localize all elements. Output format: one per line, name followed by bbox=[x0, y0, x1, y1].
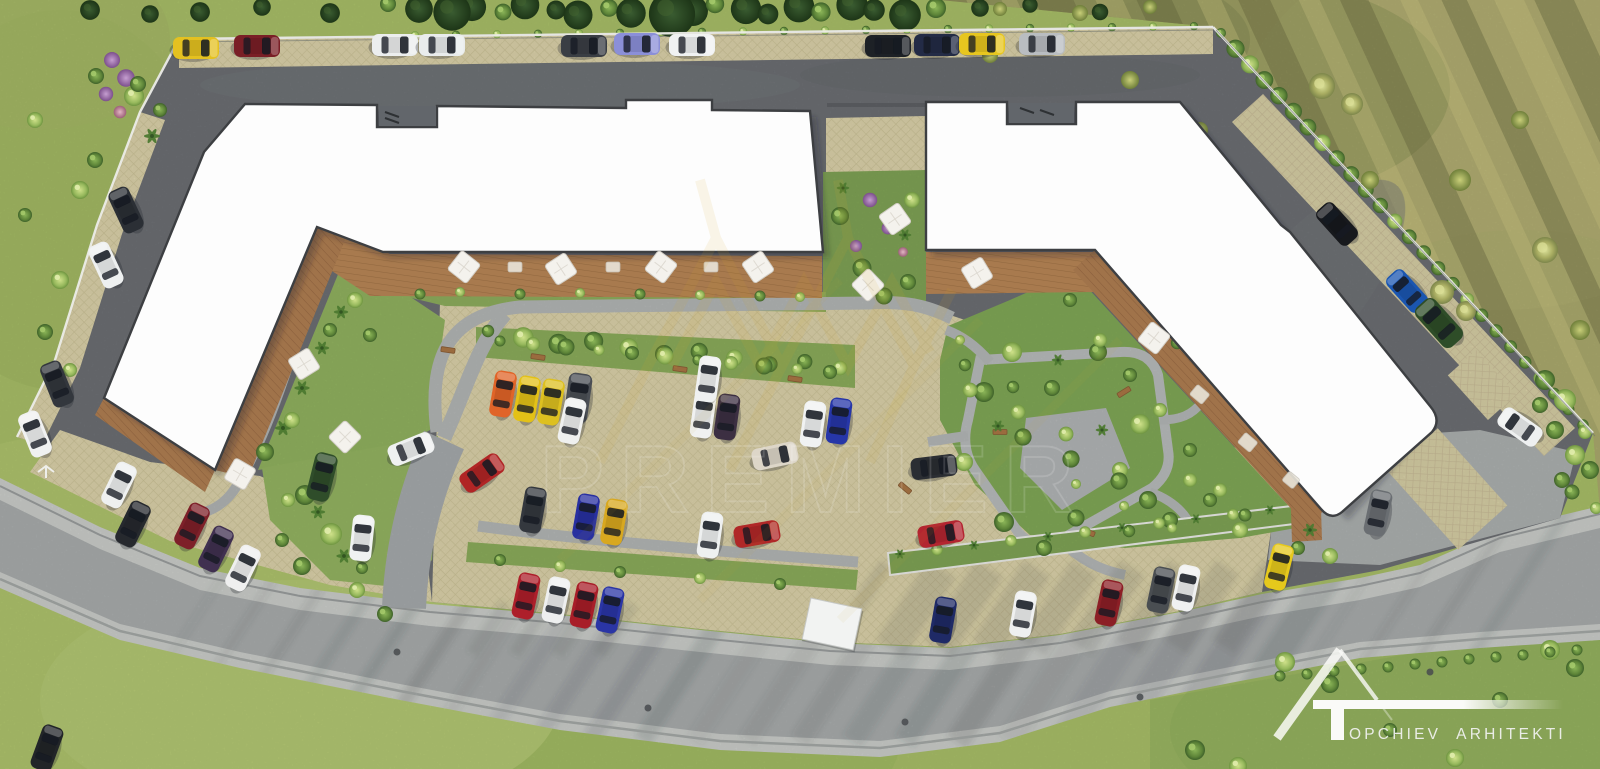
svg-text:OPCHIEV ARHITEKTI: OPCHIEV ARHITEKTI bbox=[1349, 726, 1566, 743]
svg-text:PREMIER: PREMIER bbox=[540, 426, 1089, 533]
